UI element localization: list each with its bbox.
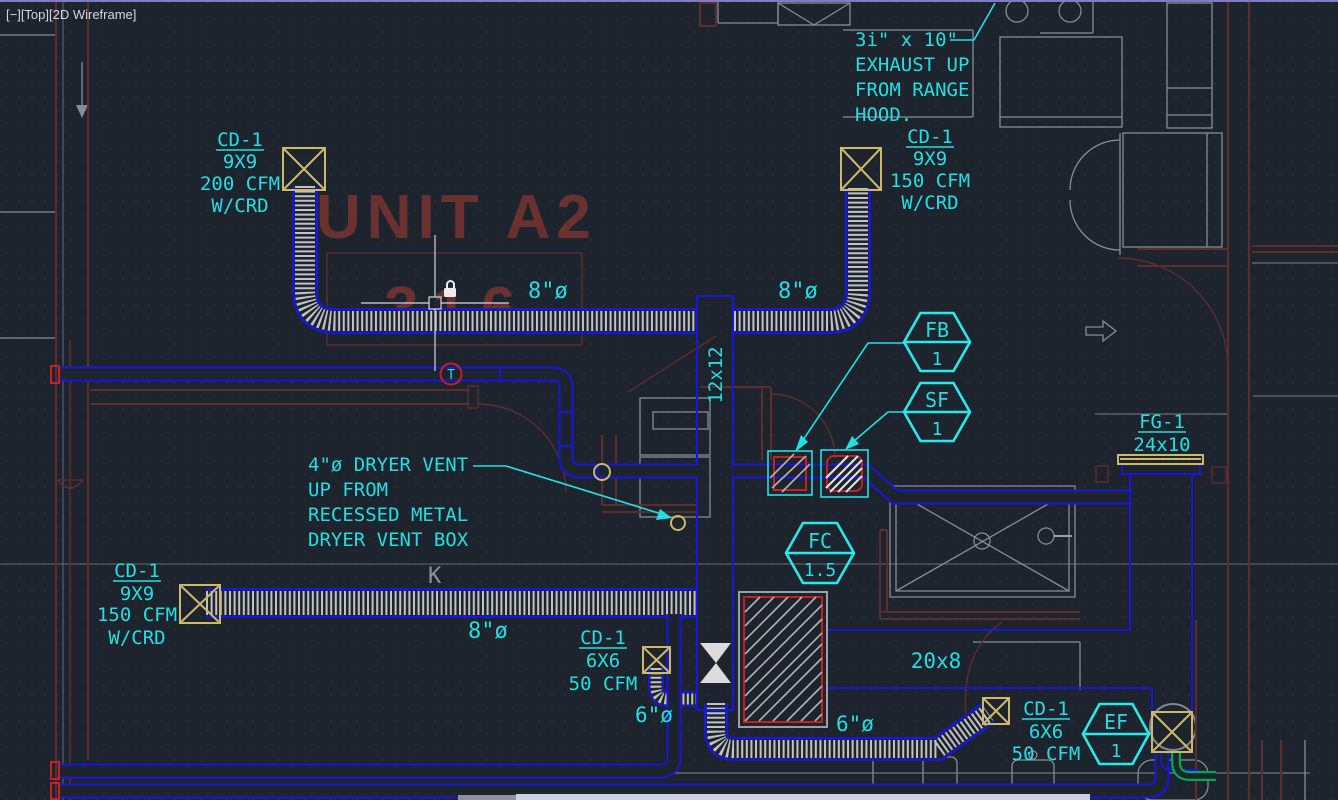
diffuser-b-flow: 150 CFM	[890, 170, 970, 192]
grille-size: 24x10	[1133, 434, 1190, 456]
room-name: UNIT A2	[316, 183, 597, 252]
duct-label-6a: 6"ø	[635, 703, 673, 727]
kitchen-letter: K	[428, 564, 442, 589]
svg-text:1: 1	[1111, 741, 1122, 762]
svg-text:T: T	[447, 368, 455, 383]
svg-text:1: 1	[932, 349, 943, 370]
viewport-top-border	[0, 0, 1338, 2]
svg-text:FB: FB	[925, 318, 949, 342]
diffuser-c-tag: CD-1	[114, 560, 160, 582]
diffuser-d-flow: 50 CFM	[569, 673, 638, 695]
bottom-strip[interactable]	[516, 794, 1090, 800]
diffuser-a-size: 9X9	[223, 151, 257, 173]
diffuser-a-flow: 200 CFM	[200, 173, 280, 195]
dryer-note-1: 4"ø DRYER VENT	[308, 454, 468, 476]
dryer-note-3: RECESSED METAL	[308, 504, 468, 526]
exhaust-note-4: HOOD.	[855, 104, 912, 126]
dryer-note-4: DRYER VENT BOX	[308, 529, 469, 551]
svg-text:SF: SF	[925, 388, 949, 412]
exhaust-note-1: 3i" x 10"	[855, 29, 958, 51]
diffuser-a-tag: CD-1	[217, 129, 263, 151]
cad-viewport[interactable]: UNIT A2 316	[0, 0, 1338, 800]
diffuser-a-extra: W/CRD	[211, 195, 268, 217]
dryer-note-2: UP FROM	[308, 479, 388, 501]
diffuser-b-tag: CD-1	[907, 126, 953, 148]
drawing-canvas[interactable]: UNIT A2 316	[0, 0, 1338, 800]
duct-label-8c: 8"ø	[468, 619, 508, 644]
svg-text:FC: FC	[808, 529, 832, 553]
diffuser-c-flow: 150 CFM	[97, 604, 177, 626]
bottom-strip-segment[interactable]	[458, 795, 516, 800]
diffuser-b-extra: W/CRD	[901, 192, 958, 214]
diffuser-c-extra: W/CRD	[108, 627, 165, 649]
svg-text:1: 1	[932, 419, 943, 440]
diffuser-b-size: 9X9	[913, 148, 947, 170]
duct-label-20x8: 20x8	[911, 649, 962, 673]
viewport-controls[interactable]: [−][Top][2D Wireframe]	[6, 7, 136, 22]
exhaust-note-3: FROM RANGE	[855, 79, 969, 101]
duct-label-8b: 8"ø	[778, 279, 818, 304]
grille-tag: FG-1	[1139, 411, 1185, 433]
svg-text:EF: EF	[1104, 710, 1128, 734]
diffuser-c-size: 9X9	[120, 583, 154, 605]
diffuser-d-tag: CD-1	[580, 627, 626, 649]
svg-text:1.5: 1.5	[804, 560, 837, 581]
diffuser-e-tag: CD-1	[1023, 698, 1069, 720]
duct-label-6b: 6"ø	[836, 712, 874, 736]
duct-label-12x12: 12x12	[705, 346, 727, 403]
diffuser-e-size: 6X6	[1029, 721, 1063, 743]
diffuser-e-flow: 50 CFM	[1012, 743, 1081, 765]
duct-label-8a: 8"ø	[528, 279, 568, 304]
exhaust-note-2: EXHAUST UP	[855, 54, 969, 76]
diffuser-d-size: 6X6	[586, 650, 620, 672]
